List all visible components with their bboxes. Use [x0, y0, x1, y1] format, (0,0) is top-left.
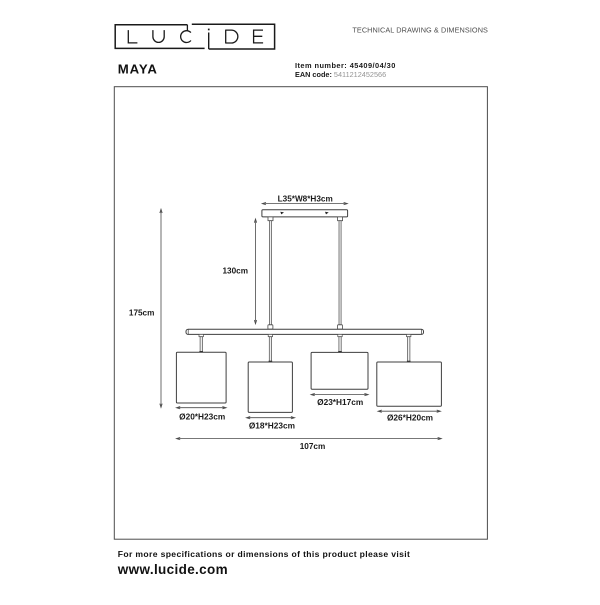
svg-text:Ø26*H20cm: Ø26*H20cm	[387, 412, 433, 422]
svg-text:107cm: 107cm	[300, 442, 326, 451]
svg-text:Ø18*H23cm: Ø18*H23cm	[249, 420, 295, 430]
svg-text:www.lucide.com: www.lucide.com	[117, 562, 228, 577]
svg-text:EAN code: 5411212452566: EAN code: 5411212452566	[295, 70, 386, 79]
svg-text:130cm: 130cm	[223, 266, 249, 275]
svg-text:MAYA: MAYA	[118, 61, 158, 76]
svg-text:175cm: 175cm	[129, 309, 155, 318]
svg-text:Ø20*H23cm: Ø20*H23cm	[179, 411, 225, 421]
svg-text:Item number: 45409/04/30: Item number: 45409/04/30	[295, 61, 396, 70]
svg-text:L35*W8*H3cm: L35*W8*H3cm	[278, 194, 333, 203]
svg-text:For more specifications or dim: For more specifications or dimensions of…	[118, 549, 410, 559]
svg-text:TECHNICAL DRAWING & DIMENSIONS: TECHNICAL DRAWING & DIMENSIONS	[352, 25, 488, 34]
svg-text:Ø23*H17cm: Ø23*H17cm	[317, 397, 363, 407]
